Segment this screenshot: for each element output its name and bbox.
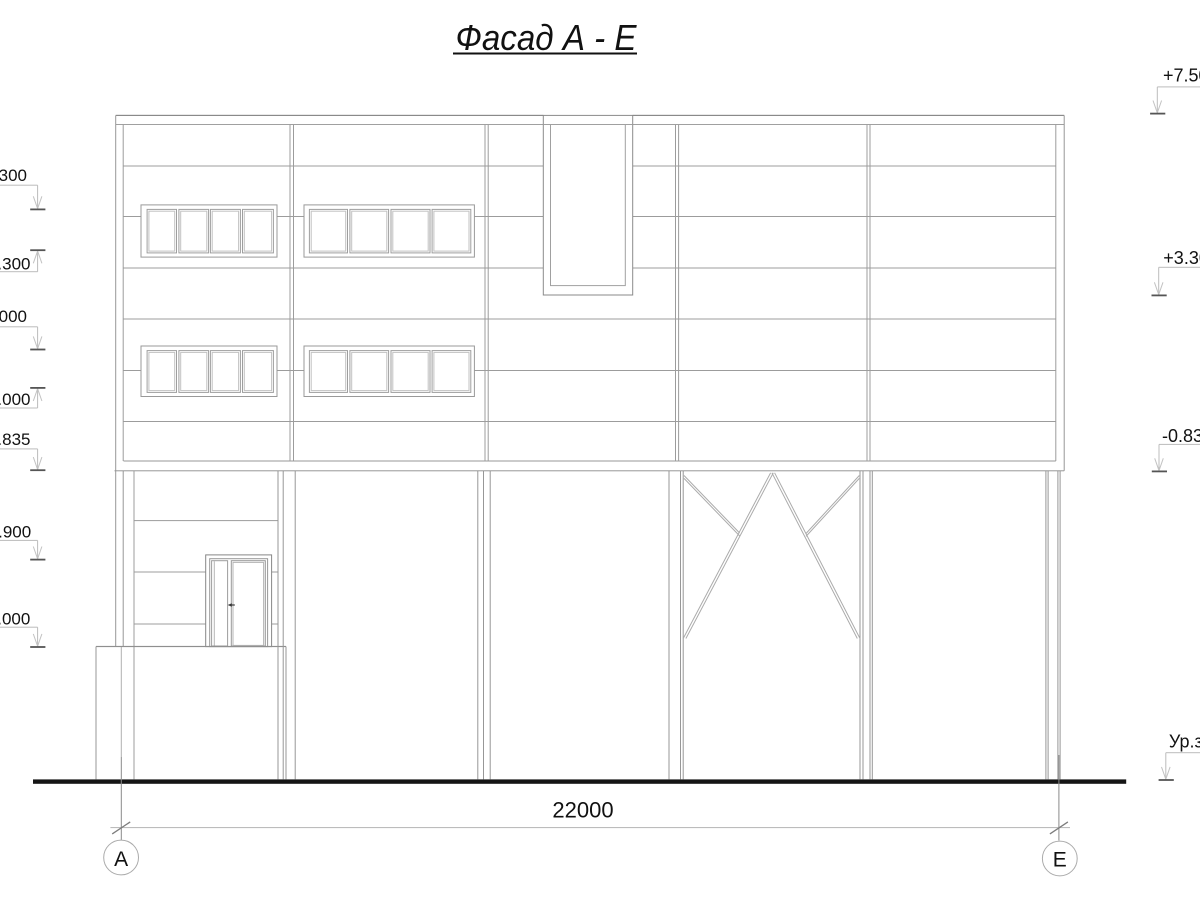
svg-text:Ур.з.: Ур.з. (1169, 732, 1200, 752)
svg-text:Фасад А - Е: Фасад А - Е (456, 17, 638, 58)
svg-text:.000: .000 (0, 390, 31, 409)
svg-text:-0.835: -0.835 (1162, 426, 1200, 446)
svg-text:.835: .835 (0, 430, 31, 449)
svg-text:000: 000 (0, 307, 27, 326)
svg-text:300: 300 (0, 166, 27, 185)
svg-text:+7.500: +7.500 (1163, 66, 1200, 86)
svg-text:.900: .900 (0, 523, 31, 542)
svg-text:.300: .300 (0, 255, 31, 274)
svg-text:А: А (114, 848, 128, 871)
svg-text:.000: .000 (0, 610, 30, 629)
svg-text:Е: Е (1053, 848, 1067, 871)
svg-text:+3.300: +3.300 (1163, 248, 1200, 268)
svg-text:22000: 22000 (552, 797, 613, 822)
